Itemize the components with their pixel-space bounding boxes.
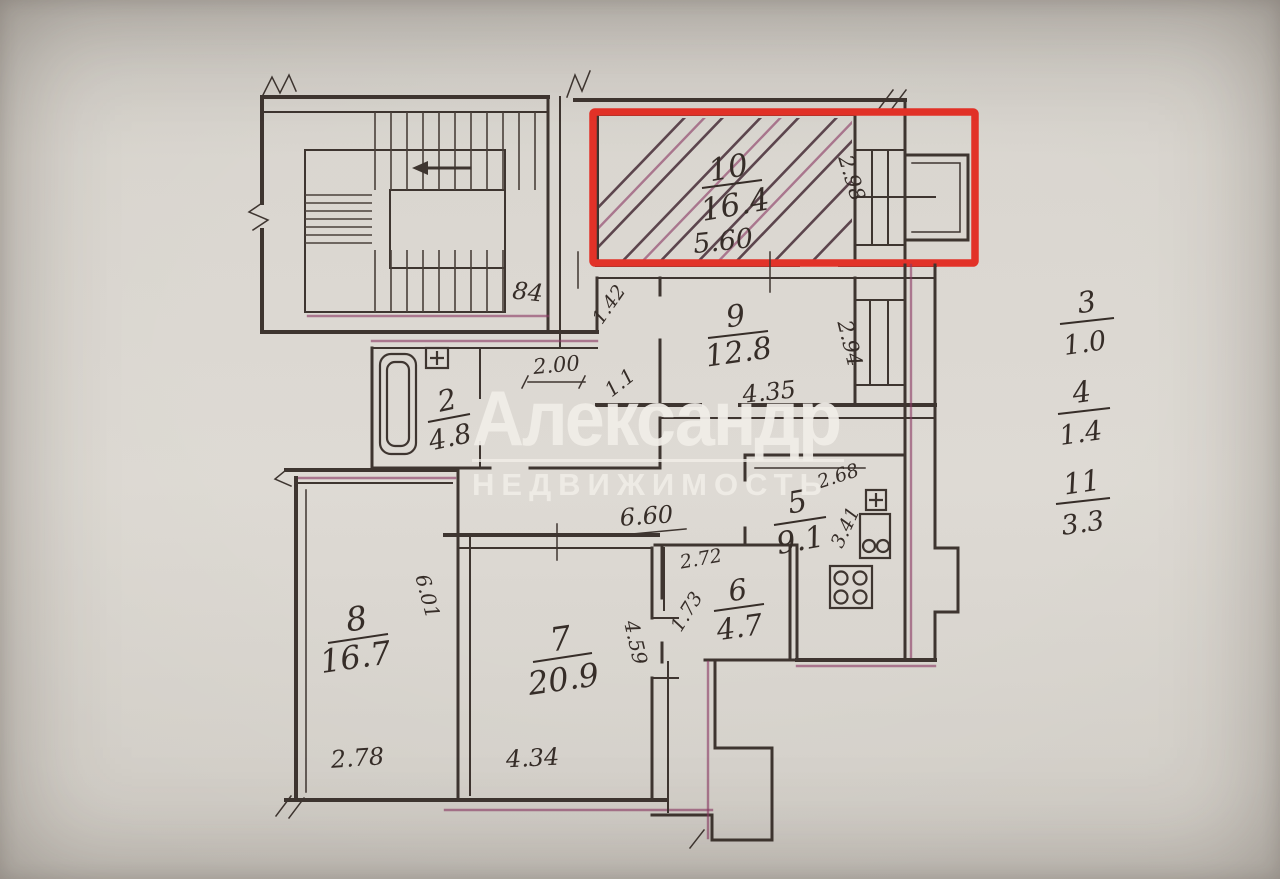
wall-break-icon bbox=[275, 470, 291, 486]
room-8-width-dim: 2.78 bbox=[329, 742, 385, 774]
hall-dim-1-1: 1.1 bbox=[600, 363, 640, 401]
wall-break-icon bbox=[262, 75, 296, 97]
room-6: 6 4.7 2.72 1.73 bbox=[655, 545, 797, 662]
building-right-edge bbox=[935, 265, 958, 660]
room-8-number: 8 bbox=[343, 598, 369, 640]
room-10-area: 16.4 bbox=[698, 181, 772, 228]
margin-note-4-number: 4 bbox=[1069, 374, 1093, 410]
hall-dim-2-00: 2.00 bbox=[531, 351, 581, 379]
room-9-width-dim: 4.35 bbox=[740, 375, 797, 409]
margin-note-3-area: 1.0 bbox=[1061, 325, 1108, 362]
margin-notes: 3 1.0 4 1.4 11 3.3 bbox=[1056, 284, 1114, 542]
wall-break-icon bbox=[567, 71, 590, 97]
room-7-height-dim: 4.59 bbox=[619, 617, 653, 667]
room-6-number: 6 bbox=[726, 572, 749, 608]
room-5-dim-2-68: 2.68 bbox=[814, 459, 862, 493]
room-6-dim-2-72: 2.72 bbox=[677, 545, 723, 574]
room-5-area: 9.1 bbox=[774, 519, 827, 562]
room-9-number: 9 bbox=[724, 298, 748, 335]
margin-note-4-area: 1.4 bbox=[1057, 415, 1104, 452]
room-10-width-dim: 5.60 bbox=[692, 223, 755, 260]
room-5-number: 5 bbox=[785, 484, 810, 522]
margin-note-3-number: 3 bbox=[1075, 284, 1098, 320]
corridor-dim-6-60: 6.60 bbox=[619, 500, 674, 532]
floorplan-photo: 84 10 16.4 5.60 2.98 bbox=[0, 0, 1280, 879]
margin-note-11-area: 3.3 bbox=[1059, 505, 1106, 542]
room-6-dim-1-73: 1.73 bbox=[666, 588, 707, 636]
entry-lobby bbox=[652, 660, 772, 848]
room-2-area: 4.8 bbox=[425, 418, 474, 457]
room-7-width-dim: 4.34 bbox=[504, 743, 560, 774]
margin-note-11-number: 11 bbox=[1061, 463, 1102, 502]
staircase: 84 bbox=[249, 71, 590, 347]
room-5-dim-3-41: 3.41 bbox=[827, 504, 865, 552]
room-8: 8 16.7 2.78 6.01 bbox=[275, 470, 470, 818]
hall-dim-1-42: 1.42 bbox=[588, 281, 630, 328]
floor-plan-drawing: 84 10 16.4 5.60 2.98 bbox=[0, 0, 1280, 879]
room-6-area: 4.7 bbox=[713, 607, 765, 647]
stair-arrow-head-icon bbox=[412, 161, 428, 175]
room-8-area: 16.7 bbox=[318, 633, 394, 681]
wall-break-icon bbox=[249, 203, 268, 230]
room-7: 7 20.9 4.34 4.59 bbox=[445, 524, 712, 810]
room-2-bathroom: 2 4.8 bbox=[372, 348, 480, 468]
room-8-height-dim: 6.01 bbox=[410, 572, 445, 621]
stair-number-label: 84 bbox=[511, 277, 544, 308]
room-7-number: 7 bbox=[547, 618, 573, 660]
bathtub-icon bbox=[380, 354, 416, 454]
room-9-height-dim: 2.94 bbox=[832, 317, 867, 369]
room-2-number: 2 bbox=[433, 382, 459, 419]
